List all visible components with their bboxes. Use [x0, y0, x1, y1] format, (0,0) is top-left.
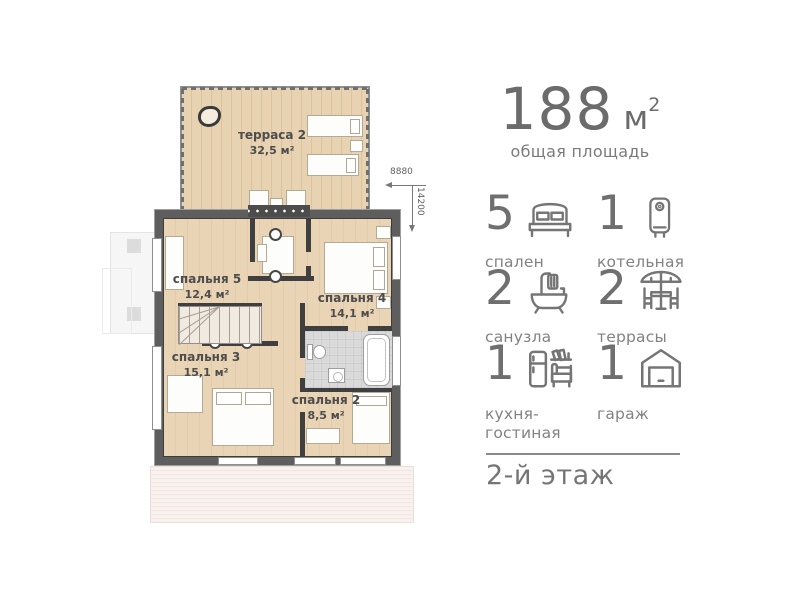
garage-icon: [636, 344, 686, 398]
floor-label: 2-й этаж: [486, 460, 614, 491]
dimension-line: [390, 185, 426, 186]
bedroom3-label: спальня 3 15,1 м²: [156, 350, 256, 380]
total-area: 188 м2 общая площадь: [500, 80, 660, 161]
bedroom2-label: спальня 2 8,5 м²: [276, 393, 376, 423]
nightstand: [376, 226, 391, 239]
dimension-arrow: [385, 182, 392, 188]
total-area-unit: м2: [623, 94, 660, 137]
roof-below-strip: [150, 466, 414, 523]
bed: [212, 388, 274, 446]
feature-garage: 1 гараж: [597, 342, 709, 424]
side-table: [350, 140, 363, 152]
plant-icon: [198, 106, 221, 127]
total-area-label: общая площадь: [500, 142, 660, 161]
bedroom5-label: спальня 5 12,4 м²: [157, 272, 257, 302]
feature-kitchen-living: 1 кухня- гостиная: [485, 342, 597, 444]
bathtub: [363, 334, 390, 386]
side-cabinet: [257, 244, 267, 262]
window: [152, 346, 162, 430]
terrace-railing: [182, 87, 368, 90]
cabinet: [306, 428, 340, 444]
sink: [328, 368, 345, 383]
boiler-icon: [636, 194, 682, 246]
staircase: [178, 306, 262, 344]
bathtub-icon: [524, 269, 574, 321]
building-outline: [155, 210, 400, 465]
window: [152, 238, 162, 292]
wall-segment: [250, 218, 255, 262]
bed-icon: [524, 194, 576, 246]
terrace-railing: [366, 88, 369, 211]
wall-segment: [306, 218, 311, 252]
balcony-post: [127, 239, 141, 253]
terrace-2: терраса 2 32,5 м²: [180, 86, 370, 211]
window: [294, 457, 336, 465]
window: [340, 457, 386, 465]
kitchen-icon: [524, 344, 574, 398]
chair-icon: [269, 270, 282, 283]
window: [218, 457, 258, 465]
bed: [324, 242, 388, 294]
balcony-sub-outline: [102, 268, 132, 334]
dimension-width: 8880: [390, 167, 413, 177]
terrace-door-sill: [248, 205, 310, 217]
terrace-label: терраса 2 32,5 м²: [207, 128, 337, 158]
terrace-icon: [636, 269, 686, 321]
dimension-line: [412, 185, 413, 225]
dimension-depth: 14200: [415, 187, 425, 216]
window: [392, 336, 401, 386]
chair-icon: [269, 228, 282, 241]
window: [392, 236, 401, 280]
dresser: [167, 375, 203, 413]
bedroom4-label: спальня 4 14,1 м²: [302, 291, 402, 321]
toilet-bowl: [313, 345, 326, 359]
total-area-value: 188: [500, 80, 614, 138]
divider: [486, 453, 680, 455]
terrace-railing: [181, 88, 184, 211]
dimension-arrow: [409, 225, 415, 232]
